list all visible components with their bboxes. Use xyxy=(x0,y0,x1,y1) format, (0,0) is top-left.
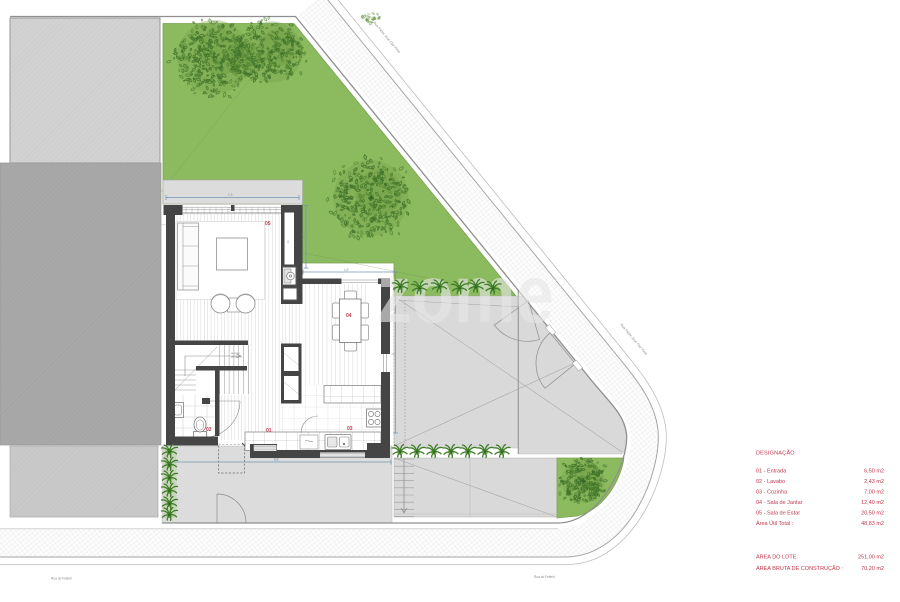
svg-text:251,00 m2: 251,00 m2 xyxy=(858,555,884,561)
svg-text:05: 05 xyxy=(265,221,271,227)
svg-text:DESIGNAÇÃO: DESIGNAÇÃO xyxy=(756,450,795,457)
svg-text:03: 03 xyxy=(347,426,353,432)
svg-text:Área Útil Total :: Área Útil Total : xyxy=(756,520,794,527)
svg-text:05 - Sala de Estar: 05 - Sala de Estar xyxy=(756,511,800,517)
svg-text:ÁREA DO LOTE:: ÁREA DO LOTE: xyxy=(756,554,798,561)
svg-text:8,8: 8,8 xyxy=(274,458,279,462)
svg-text:03 - Cozinha: 03 - Cozinha xyxy=(756,490,788,496)
svg-text:70,20 m2: 70,20 m2 xyxy=(861,566,884,572)
svg-text:48,83 m2: 48,83 m2 xyxy=(861,521,884,527)
svg-text:1,9: 1,9 xyxy=(344,268,349,272)
svg-text:01 - Entrada: 01 - Entrada xyxy=(756,469,787,475)
svg-text:01: 01 xyxy=(266,428,272,434)
svg-text:ÁREA BRUTA DE CONSTRUÇÃO :: ÁREA BRUTA DE CONSTRUÇÃO : xyxy=(756,565,843,572)
svg-text:6,50 m2: 6,50 m2 xyxy=(864,469,884,475)
svg-text:Rua do Feiteiri: Rua do Feiteiri xyxy=(534,575,555,579)
svg-text:12,40 m2: 12,40 m2 xyxy=(861,500,884,506)
svg-text:02 - Lavabo: 02 - Lavabo xyxy=(756,479,785,485)
svg-text:9: 9 xyxy=(302,236,306,238)
svg-text:1,3: 1,3 xyxy=(228,193,233,197)
svg-text:02: 02 xyxy=(206,427,212,433)
svg-text:04 - Sala de Jantar: 04 - Sala de Jantar xyxy=(756,500,803,506)
svg-text:9: 9 xyxy=(391,353,395,355)
svg-text:2,43 m2: 2,43 m2 xyxy=(864,479,884,485)
svg-text:04: 04 xyxy=(346,313,352,319)
svg-text:garagem: garagem xyxy=(231,355,243,359)
svg-text:Rua do Feiteiri: Rua do Feiteiri xyxy=(51,577,72,581)
svg-text:zome: zome xyxy=(377,249,554,340)
svg-text:20,50 m2: 20,50 m2 xyxy=(861,511,884,517)
svg-text:7,00 m2: 7,00 m2 xyxy=(864,490,884,496)
